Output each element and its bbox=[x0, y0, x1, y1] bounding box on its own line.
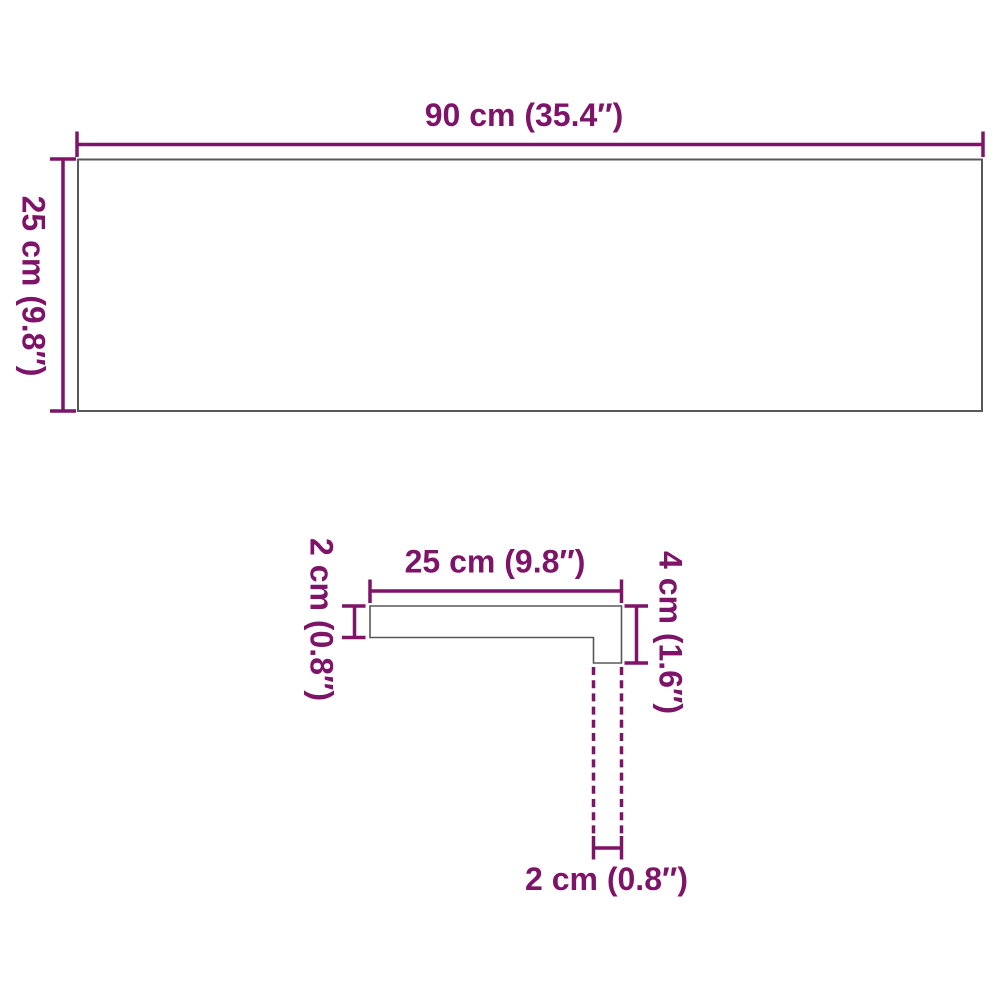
svg-text:25 cm (9.8″): 25 cm (9.8″) bbox=[405, 544, 586, 580]
svg-text:2 cm (0.8″): 2 cm (0.8″) bbox=[304, 538, 340, 701]
svg-text:90 cm (35.4″): 90 cm (35.4″) bbox=[425, 97, 624, 133]
svg-text:4 cm (1.6″): 4 cm (1.6″) bbox=[653, 551, 689, 714]
svg-text:25 cm (9.8″): 25 cm (9.8″) bbox=[16, 196, 52, 377]
svg-text:2 cm (0.8″): 2 cm (0.8″) bbox=[525, 861, 688, 897]
